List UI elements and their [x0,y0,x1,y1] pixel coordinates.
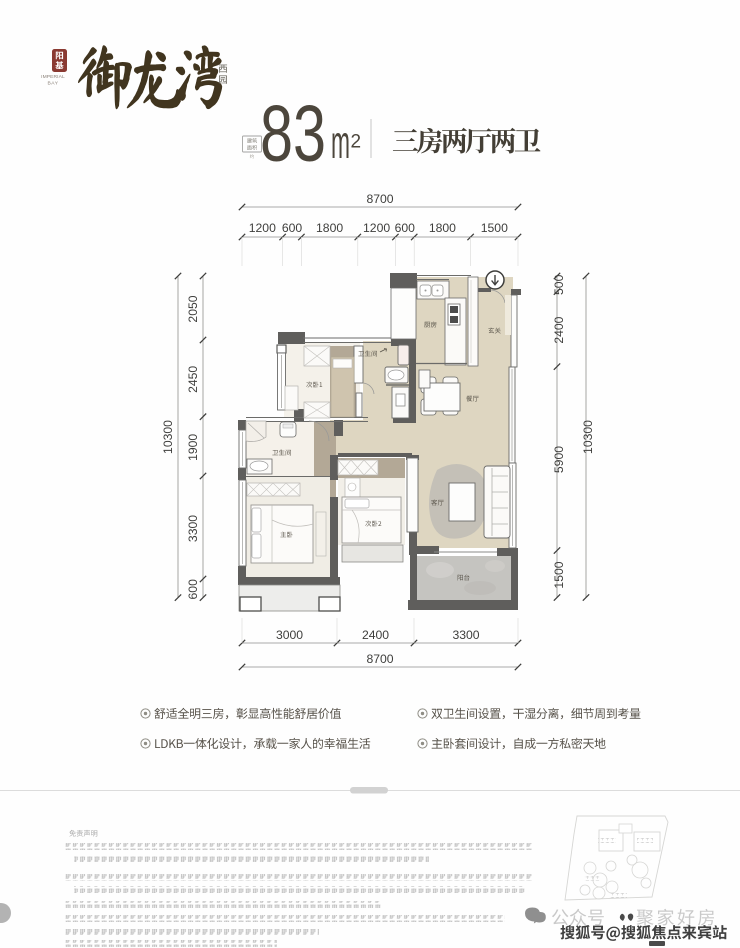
svg-text:1900: 1900 [186,434,200,461]
svg-text:BAY: BAY [48,81,59,87]
svg-text:8700: 8700 [366,192,393,206]
svg-text:2: 2 [351,132,362,153]
svg-text:600: 600 [282,221,303,235]
svg-text:500: 500 [552,274,566,295]
svg-text:3300: 3300 [452,628,479,642]
svg-text:m: m [331,116,350,168]
svg-text:IMPERIAL: IMPERIAL [41,74,65,80]
svg-text:5900: 5900 [552,446,566,473]
svg-text:1500: 1500 [481,221,508,235]
svg-text:1800: 1800 [429,221,456,235]
svg-text:600: 600 [395,221,416,235]
svg-text:2400: 2400 [552,316,566,343]
svg-text:8700: 8700 [366,652,393,666]
svg-text:10300: 10300 [581,420,595,454]
svg-text:1800: 1800 [316,221,343,235]
svg-text:1200: 1200 [249,221,276,235]
svg-text:2450: 2450 [186,366,200,393]
svg-text:3000: 3000 [276,628,303,642]
svg-text:2400: 2400 [362,628,389,642]
svg-text:83: 83 [260,89,326,178]
svg-text:2050: 2050 [186,295,200,322]
svg-text:1500: 1500 [552,561,566,588]
svg-text:3300: 3300 [186,515,200,542]
svg-text:10300: 10300 [161,420,175,454]
svg-text:1200: 1200 [363,221,390,235]
svg-text:600: 600 [186,579,200,600]
